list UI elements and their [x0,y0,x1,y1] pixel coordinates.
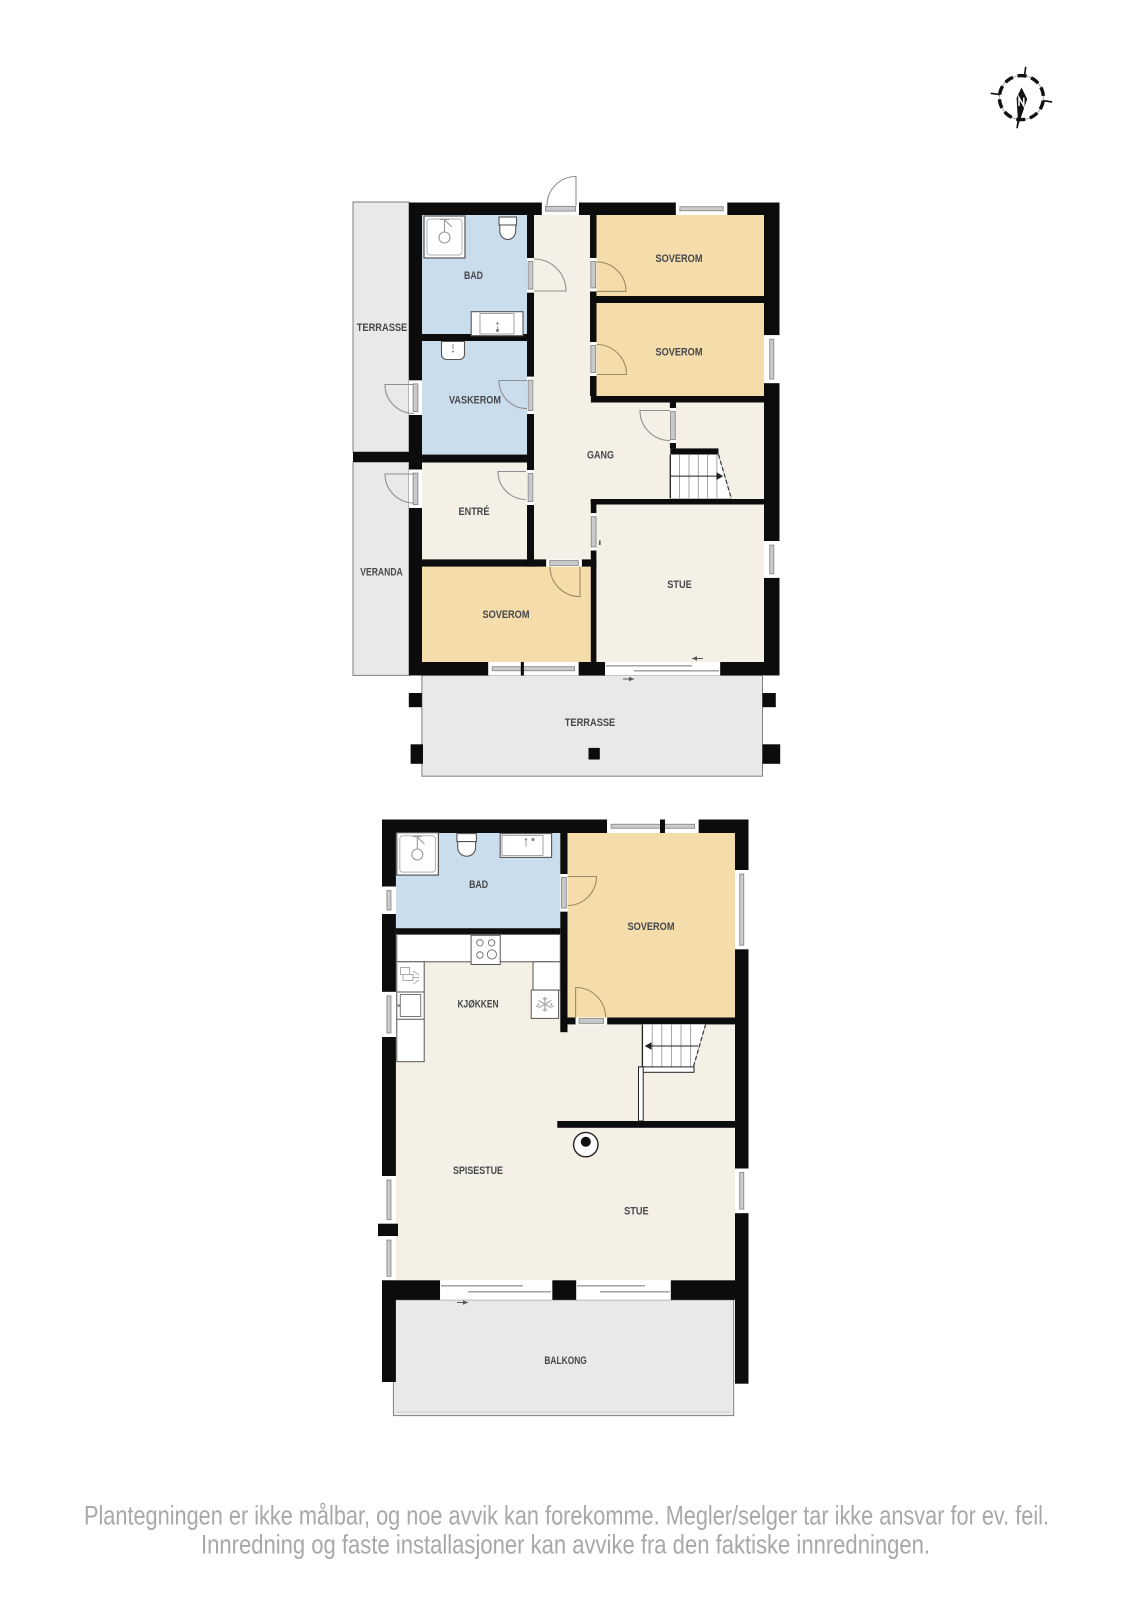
svg-text:STUE: STUE [624,1205,649,1217]
svg-text:SOVEROM: SOVEROM [656,346,703,358]
svg-text:SOVEROM: SOVEROM [483,609,530,621]
svg-text:TERRASSE: TERRASSE [357,322,408,334]
svg-text:ENTRÉ: ENTRÉ [459,505,490,518]
svg-text:STUE: STUE [667,579,692,591]
svg-text:VASKEROM: VASKEROM [449,394,501,406]
svg-text:BALKONG: BALKONG [544,1355,587,1367]
svg-text:VERANDA: VERANDA [360,566,403,578]
svg-text:BAD: BAD [464,270,483,282]
svg-text:Innredning og faste installasj: Innredning og faste installasjoner kan a… [201,1530,930,1560]
svg-text:KJØKKEN: KJØKKEN [458,998,499,1010]
svg-text:TERRASSE: TERRASSE [565,717,616,729]
svg-text:SOVEROM: SOVEROM [628,921,675,933]
svg-text:SPISESTUE: SPISESTUE [453,1165,503,1177]
svg-text:BAD: BAD [469,879,488,891]
svg-text:SOVEROM: SOVEROM [656,253,703,265]
svg-text:GANG: GANG [587,449,614,461]
svg-text:Plantegningen er ikke målbar,: Plantegningen er ikke målbar, og noe avv… [84,1501,1049,1531]
